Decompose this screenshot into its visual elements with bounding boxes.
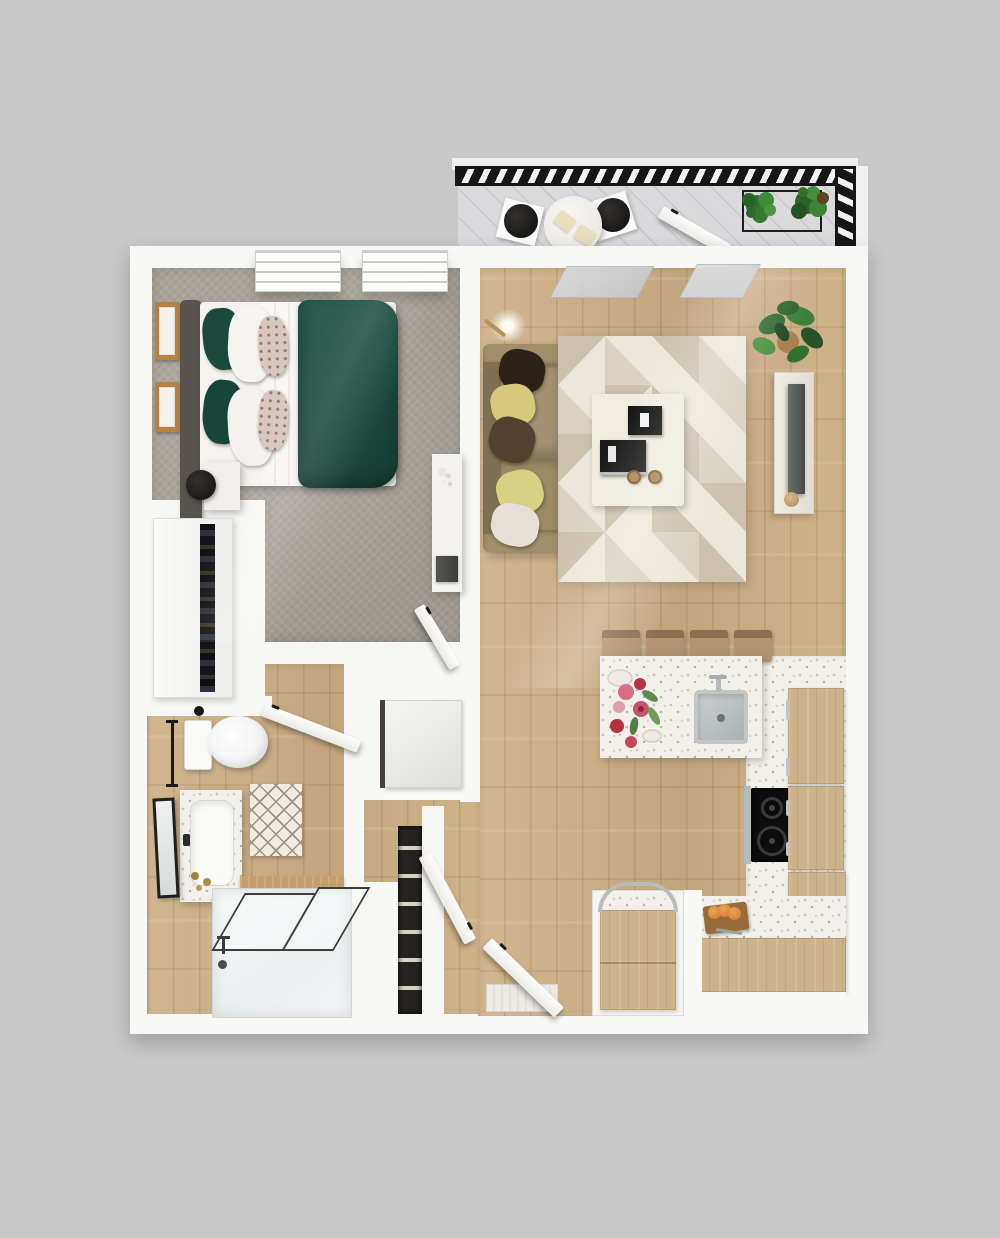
coffee-table-book — [600, 440, 646, 475]
vanity-faucet — [183, 834, 190, 846]
book-label — [608, 446, 616, 462]
bread-slice — [728, 907, 741, 920]
cooktop-burner — [757, 826, 787, 856]
tub-drain-knob — [218, 960, 227, 969]
cabinet-pull — [786, 758, 790, 776]
desk-flowers — [438, 468, 446, 476]
balcony-side-cap — [856, 166, 868, 246]
cooktop-trim — [744, 786, 751, 864]
window — [362, 250, 448, 292]
cooktop-burner — [761, 797, 783, 819]
wood-stool — [627, 470, 641, 484]
tub-faucet — [222, 938, 225, 954]
bed-duvet — [298, 300, 398, 488]
brass-fixture — [196, 885, 202, 891]
balcony-plants — [733, 178, 837, 236]
linen-shelves — [398, 826, 422, 1014]
tub-faucet-handle — [217, 936, 230, 939]
toilet-bowl — [208, 716, 268, 768]
plant-right — [791, 186, 829, 219]
flowers-and-plates — [604, 664, 670, 754]
wood-stool — [648, 470, 662, 484]
fridge-cabinet — [788, 688, 844, 784]
brass-fixture — [191, 872, 199, 880]
wall-bedroom-hall — [262, 642, 462, 664]
wall-art-print — [159, 387, 175, 427]
wall-art-print — [159, 307, 175, 355]
sofa — [483, 344, 569, 552]
bath-rug-lattice — [250, 784, 302, 856]
potted-plant — [742, 294, 834, 372]
sliding-glass-panel — [549, 266, 654, 298]
cabinet-pull — [786, 800, 790, 816]
cabinet-pull — [786, 700, 790, 720]
wall-bathroom-right — [344, 664, 364, 898]
towel-bar-cap — [166, 784, 178, 787]
wall-bathroom-top — [147, 696, 272, 714]
kitchen-cabinet-bottom-run — [700, 938, 846, 992]
wardrobe-hanging-clothes — [200, 524, 215, 692]
wardrobe — [153, 518, 233, 698]
tray-remote — [640, 413, 649, 427]
plant-left — [742, 192, 776, 223]
kitchen-cabinet-run — [788, 786, 844, 870]
washer-dryer — [384, 700, 462, 788]
patio-chair-seat — [504, 204, 538, 238]
sink-drain — [717, 714, 725, 722]
towel-bar-cap — [166, 720, 178, 723]
floor-plan-scene — [0, 0, 1000, 1238]
sink-faucet-spout — [709, 675, 727, 679]
washer-door-gap — [380, 700, 385, 788]
linen-closet-wall-right — [422, 806, 444, 1014]
kitchen-bottom-wall-strip — [700, 992, 846, 1016]
kitchen-cart-front — [600, 910, 676, 1010]
towel-bar — [171, 722, 174, 786]
balcony-railing-right — [835, 166, 856, 246]
window — [255, 250, 341, 292]
cabinet-pull — [786, 842, 790, 856]
bed-pillow-floral — [257, 315, 289, 376]
alarm-clock — [186, 470, 216, 500]
toilet-flush-button — [194, 706, 204, 716]
desk-laptop — [436, 556, 458, 582]
bed-headboard — [180, 300, 202, 546]
brass-fixture — [203, 878, 211, 886]
console-vase — [784, 492, 799, 507]
television — [788, 384, 805, 494]
